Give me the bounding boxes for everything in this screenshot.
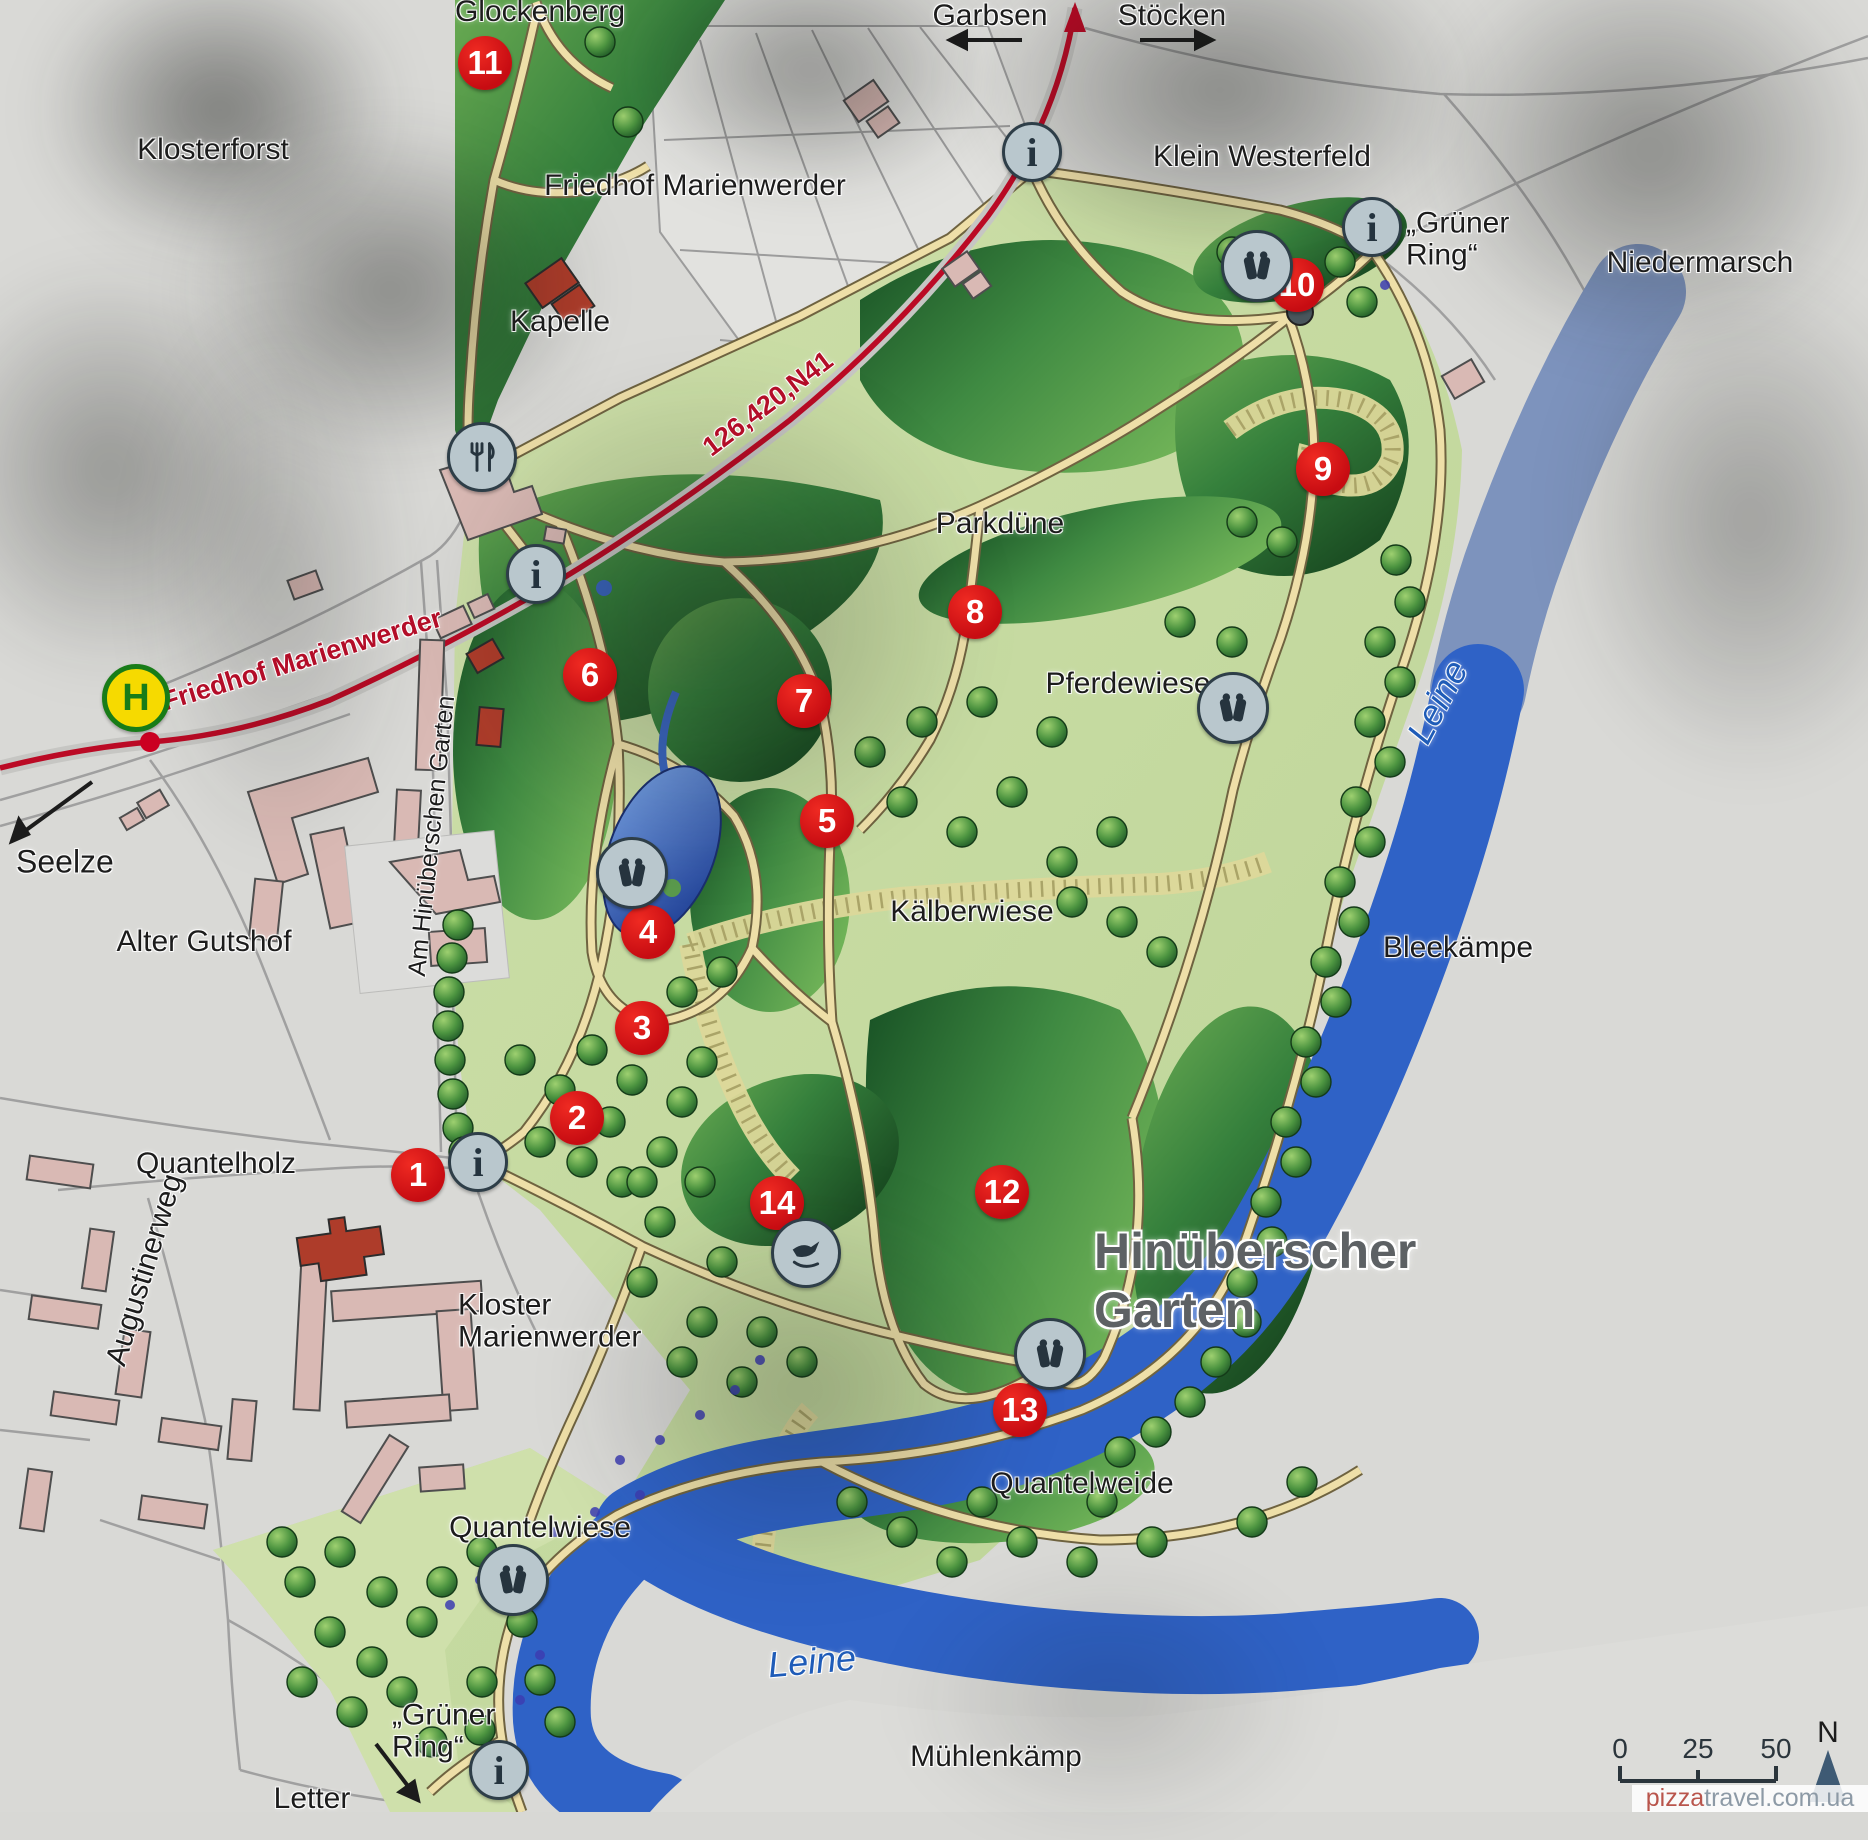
poi-marker-12: 12	[975, 1165, 1029, 1219]
watermark-prefix: pizza	[1646, 1784, 1704, 1812]
label-friedhof-marienwerder-street: Friedhof Marienwerder	[159, 604, 446, 717]
label-gruener-ring-north: „Grüner Ring“	[1406, 208, 1509, 273]
label-glockenberg: Glockenberg	[455, 0, 625, 28]
label-klosterforst: Klosterforst	[137, 134, 289, 166]
bus-stop-h-icon: H	[102, 664, 170, 732]
restaurant-icon	[447, 422, 517, 492]
watermark-suffix: travel.com.ua	[1704, 1784, 1854, 1812]
scale-tick-0: 0	[1612, 1733, 1628, 1764]
poi-marker-11: 11	[458, 36, 512, 90]
binoculars-lake-icon	[596, 837, 668, 909]
label-kloster-marienwerder: Kloster Marienwerder	[458, 1290, 641, 1355]
binoculars-north-icon	[1221, 230, 1293, 302]
label-leine-east: Leine	[1400, 654, 1476, 750]
poi-marker-5: 5	[800, 794, 854, 848]
info-gruener-ring-south-icon: i	[469, 1740, 529, 1800]
label-road-number: 126,420,N41	[697, 346, 838, 462]
poi-marker-7: 7	[777, 674, 831, 728]
label-am-hinueberschen-garten: Am Hinüberschen Garten	[404, 694, 460, 977]
poi-marker-4: 4	[621, 905, 675, 959]
info-main-entrance-icon: i	[448, 1132, 508, 1192]
label-klein-westerfeld: Klein Westerfeld	[1153, 141, 1371, 173]
label-quantelweide: Quantelweide	[990, 1468, 1173, 1500]
label-garbsen: Garbsen	[932, 0, 1047, 32]
binoculars-pferdewiese-icon	[1197, 672, 1269, 744]
label-friedhof-marienwerder-area: Friedhof Marienwerder	[544, 170, 846, 202]
scale-tick-25: 25	[1682, 1733, 1713, 1764]
label-bleekaempe: Bleekämpe	[1383, 932, 1533, 964]
poi-marker-9: 9	[1296, 442, 1350, 496]
label-quantelwiese: Quantelwiese	[449, 1512, 631, 1544]
watermark: pizzatravel.com.ua	[1632, 1785, 1868, 1812]
label-kapelle: Kapelle	[510, 306, 610, 338]
label-leine-south: Leine	[766, 1639, 857, 1685]
label-muehlenkaemp: Mühlenkämp	[910, 1741, 1082, 1773]
park-title-line1: Hinüberscher	[1094, 1223, 1416, 1279]
poi-marker-1: 1	[391, 1148, 445, 1202]
park-sign-photo: { "sign": { "title_line1": "Hinüberscher…	[0, 0, 1868, 1812]
poi-marker-2: 2	[550, 1091, 604, 1145]
info-garbsen-junction-icon: i	[1002, 122, 1062, 182]
poi-marker-3: 3	[615, 1001, 669, 1055]
label-stoecken: Stöcken	[1118, 0, 1226, 32]
park-title-line2: Garten	[1094, 1282, 1255, 1338]
binoculars-quantelwiese-icon	[477, 1544, 549, 1616]
map-annotation-layer: HinüberscherGarten GlockenbergKlosterfor…	[0, 0, 1868, 1812]
label-letter: Letter	[274, 1783, 351, 1815]
label-augustinerweg: Augustinerweg	[100, 1170, 189, 1369]
info-park-northwest-icon: i	[506, 544, 566, 604]
binoculars-south-icon	[1014, 1318, 1086, 1390]
park-title: HinüberscherGarten	[1094, 1222, 1416, 1340]
poi-marker-6: 6	[563, 648, 617, 702]
label-parkduene: Parkdüne	[936, 508, 1064, 540]
label-pferdewiese: Pferdewiese	[1045, 668, 1210, 700]
compass-n-label: N	[1817, 1718, 1839, 1749]
bird-feeding-icon	[771, 1218, 841, 1288]
scale-tick-50: 50	[1760, 1733, 1791, 1764]
label-alter-gutshof: Alter Gutshof	[116, 926, 291, 958]
poi-marker-8: 8	[948, 585, 1002, 639]
label-kaelberwiese: Kälberwiese	[890, 896, 1053, 928]
poi-marker-13: 13	[993, 1383, 1047, 1437]
info-gruener-ring-north-icon: i	[1342, 197, 1402, 257]
label-niedermarsch: Niedermarsch	[1607, 247, 1794, 279]
label-seelze: Seelze	[16, 845, 114, 880]
